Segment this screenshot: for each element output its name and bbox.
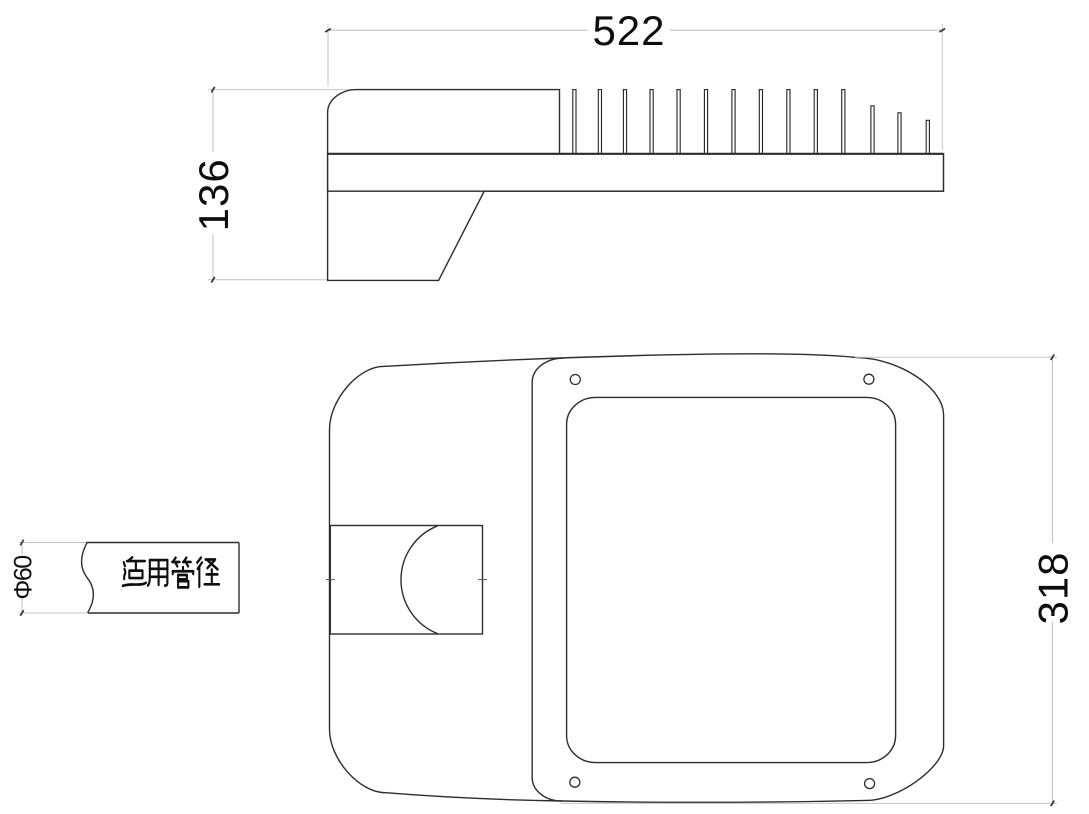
svg-text:136: 136 — [190, 158, 237, 231]
svg-text:522: 522 — [592, 7, 665, 54]
svg-text:318: 318 — [1030, 551, 1077, 624]
svg-text:Φ60: Φ60 — [10, 556, 38, 600]
